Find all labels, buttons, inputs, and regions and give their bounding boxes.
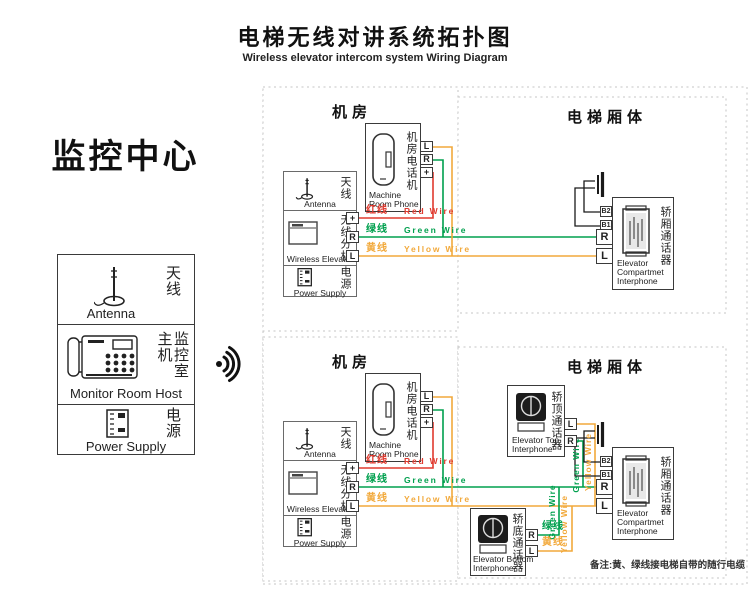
wireless-terminal-r: R xyxy=(346,481,359,493)
power-label-en: Power Supply xyxy=(58,440,194,454)
antenna-icon xyxy=(294,425,318,451)
power-supply-icon xyxy=(297,518,313,537)
red-wire-label-zh: 红线 xyxy=(366,206,388,216)
elevator-body-title: 电梯厢体 xyxy=(557,356,657,377)
wireless-terminal-l: L xyxy=(346,500,359,512)
phone-handset-icon xyxy=(371,133,397,187)
phone-terminal-l: L xyxy=(420,141,433,152)
speaker-icon xyxy=(477,514,509,556)
bottom-interphone-label-en2: Interphone xyxy=(473,564,514,573)
stack-power-row: 电源 Power Supply xyxy=(284,515,356,548)
power-label-zh: 电源 xyxy=(164,407,181,443)
red-wire-label-en: Red Wire xyxy=(404,207,455,216)
host-label-zh: 监控室主机 xyxy=(155,331,188,385)
top-interphone-terminal-l: L xyxy=(564,418,577,430)
power-supply-icon xyxy=(297,268,313,287)
monitor-center-box: 天线 Antenna 监控室主机 M xyxy=(57,254,195,455)
monitor-antenna-row: 天线 Antenna xyxy=(58,255,194,324)
bottom-interphone-terminal-r: R xyxy=(525,529,538,541)
yellow-wire-label-en: Yellow Wire xyxy=(404,245,471,254)
yellow-wire-short-label: 黄线 xyxy=(542,538,564,548)
top-interphone-terminal-r: R xyxy=(564,435,577,447)
phone-label-zh: 机房电话机 xyxy=(405,381,417,447)
compartment-terminal-r: R xyxy=(596,229,613,245)
speaker-icon xyxy=(515,392,547,434)
phone-label-zh: 机房电话机 xyxy=(405,131,417,197)
red-wire-label-en: Red Wire xyxy=(404,457,455,466)
antenna-label-en: Antenna xyxy=(284,200,356,209)
antenna-label-zh: 天线 xyxy=(164,265,181,309)
phone-terminal-plus: + xyxy=(420,167,433,178)
compartment-interphone-icon xyxy=(622,205,650,257)
top-interphone-label-en2: Interphone xyxy=(512,445,553,454)
power-supply-icon xyxy=(106,409,130,439)
wireless-terminal-plus: + xyxy=(346,212,359,224)
compartment-terminal-b2: B2 xyxy=(600,456,612,467)
compartment-interphone-icon xyxy=(622,455,650,507)
elevator-body-title: 电梯厢体 xyxy=(557,106,657,127)
yellow-wire-label-en: Yellow Wire xyxy=(404,495,471,504)
antenna-label-en: Antenna xyxy=(58,307,164,321)
desk-phone-icon xyxy=(66,333,140,383)
compartment-interphone-box: 轿厢通话器 Elevator Compartmet Interphone xyxy=(612,447,674,540)
machine-room-title: 机房 xyxy=(302,101,402,122)
elevator-top-interphone-box: 轿顶通话器 Elevator Top Interphone xyxy=(507,385,565,457)
footnote: 备注:黄、绿线接电梯自带的随行电缆 xyxy=(590,557,745,571)
elevator-bottom-interphone-box: 轿底通话器 Elevator Bottom Interphone xyxy=(470,508,526,576)
compartment-terminal-b2: B2 xyxy=(600,206,612,217)
power-label-en: Power Supply xyxy=(284,289,356,298)
power-label-en: Power Supply xyxy=(284,539,356,548)
wireless-unit-icon xyxy=(288,471,318,495)
monitor-host-row: 监控室主机 Monitor Room Host xyxy=(58,324,194,404)
phone-terminal-r: R xyxy=(420,404,433,415)
machine-room-phone-box: 机房电话机 Machine Room Phone xyxy=(365,373,421,462)
bottom-interphone-terminal-l: L xyxy=(525,545,538,557)
elevator-body-zone-top xyxy=(458,97,726,313)
green-wire-short-label: 绿线 xyxy=(542,522,564,532)
phone-terminal-l: L xyxy=(420,391,433,402)
compartment-terminal-r: R xyxy=(596,479,613,495)
compartment-terminal-l: L xyxy=(596,248,613,264)
wireless-terminal-r: R xyxy=(346,231,359,243)
green-wire-label-en: Green Wire xyxy=(404,226,467,235)
green-wire-label-zh: 绿线 xyxy=(366,225,388,235)
stack-antenna-row: 天线 Antenna xyxy=(284,422,356,460)
host-label-en: Monitor Room Host xyxy=(58,387,194,401)
yellow-wire-vertical-label: Yellow Wire xyxy=(584,427,596,497)
machine-room-title: 机房 xyxy=(302,351,402,372)
machine-room-phone-box: 机房电话机 Machine Room Phone xyxy=(365,123,421,212)
phone-terminal-r: R xyxy=(420,154,433,165)
red-wire-label-zh: 红线 xyxy=(366,456,388,466)
antenna-icon xyxy=(94,261,130,309)
compartment-terminal-l: L xyxy=(596,498,613,514)
compartment-label-en3: Interphone xyxy=(617,277,658,286)
wireless-unit-icon xyxy=(288,221,318,245)
wireless-terminal-plus: + xyxy=(346,462,359,474)
antenna-label-en: Antenna xyxy=(284,450,356,459)
compartment-interphone-box: 轿厢通话器 Elevator Compartmet Interphone xyxy=(612,197,674,290)
stack-power-row: 电源 Power Supply xyxy=(284,265,356,298)
wireless-terminal-l: L xyxy=(346,250,359,262)
green-wire-label-en: Green Wire xyxy=(404,476,467,485)
monitor-power-row: 电源 Power Supply xyxy=(58,404,194,456)
wiring-diagram-page: 电梯无线对讲系统拓扑图 Wireless elevator intercom s… xyxy=(0,0,750,589)
antenna-icon xyxy=(294,175,318,201)
yellow-wire-label-zh: 黄线 xyxy=(366,494,388,504)
stack-antenna-row: 天线 Antenna xyxy=(284,172,356,210)
compartment-label-en3: Interphone xyxy=(617,527,658,536)
yellow-wire-label-zh: 黄线 xyxy=(366,244,388,254)
green-wire-label-zh: 绿线 xyxy=(366,475,388,485)
phone-handset-icon xyxy=(371,383,397,437)
phone-terminal-plus: + xyxy=(420,417,433,428)
